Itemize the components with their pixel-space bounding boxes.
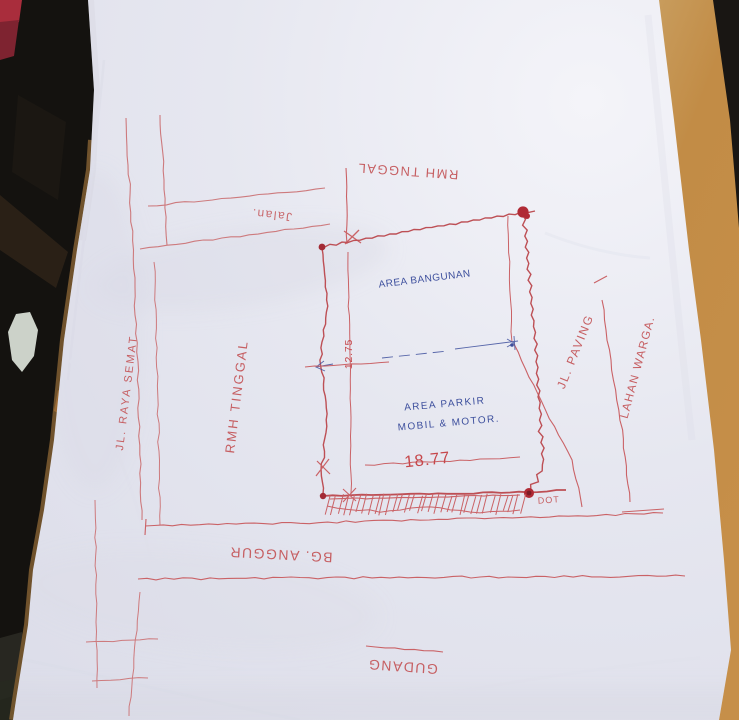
svg-text:12.75: 12.75 <box>343 339 355 369</box>
svg-text:DOT: DOT <box>537 494 560 506</box>
